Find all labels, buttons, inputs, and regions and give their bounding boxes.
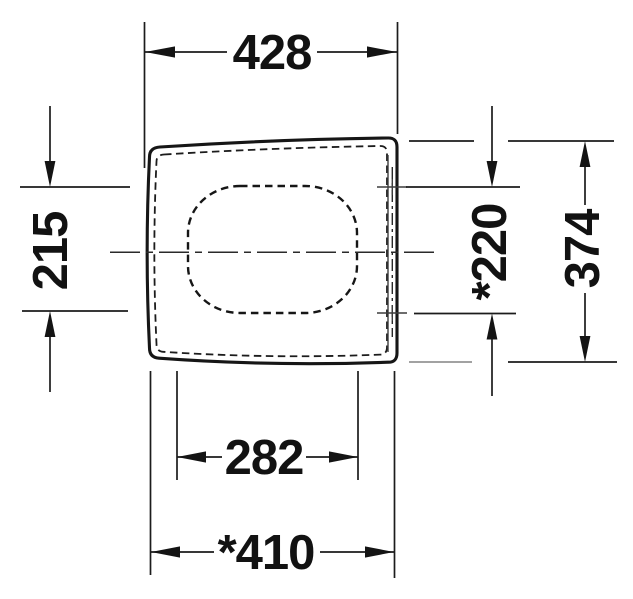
dim-410-label: *410 <box>218 526 315 580</box>
dim-410-arrow-left <box>151 546 180 557</box>
dim-215-arrow-top <box>45 161 56 187</box>
dimension-215: 215 <box>20 106 130 392</box>
dim-220-label: *220 <box>463 204 517 301</box>
dim-282-arrow-left <box>177 451 206 462</box>
dim-282-label: 282 <box>225 431 304 485</box>
dimension-220: *220 <box>406 106 520 396</box>
dim-374-label: 374 <box>556 209 610 289</box>
technical-drawing-canvas: 428 215 *220 <box>0 0 633 599</box>
dim-428-label: 428 <box>233 26 312 80</box>
seat-outer-outline <box>147 138 397 364</box>
dim-374-arrow-top <box>580 141 591 167</box>
seat-top-view <box>110 138 440 364</box>
dim-220-arrow-top <box>487 161 498 187</box>
dim-428-arrow-left <box>145 46 175 57</box>
dim-428-arrow-right <box>367 46 397 57</box>
dim-220-arrow-bottom <box>487 314 498 340</box>
dim-410-arrow-right <box>365 546 394 557</box>
seat-dimension-diagram: 428 215 *220 <box>0 0 633 599</box>
dim-215-arrow-bottom <box>45 311 56 337</box>
dimension-282: 282 <box>177 371 358 485</box>
dim-374-arrow-bottom <box>580 336 591 362</box>
dim-282-arrow-right <box>329 451 358 462</box>
dim-215-label: 215 <box>24 212 78 291</box>
